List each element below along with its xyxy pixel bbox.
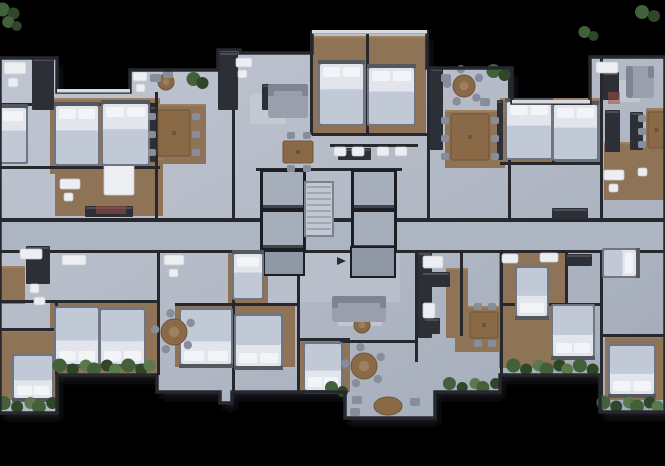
interior-wall bbox=[500, 162, 602, 165]
dining-chair bbox=[441, 153, 449, 160]
balcony-plant bbox=[12, 21, 22, 31]
bed-pillow bbox=[613, 381, 631, 391]
bed-blanket bbox=[604, 250, 623, 276]
round-table-chair bbox=[356, 343, 364, 351]
balcony-plant bbox=[648, 10, 660, 22]
bed-blanket bbox=[101, 310, 144, 341]
core-panel bbox=[352, 248, 394, 276]
parapet-wall bbox=[512, 100, 590, 104]
wood-floor bbox=[0, 266, 25, 304]
bathroom-fixture bbox=[169, 269, 178, 277]
bed-pillow bbox=[323, 67, 340, 77]
bathroom-fixture bbox=[60, 179, 80, 189]
counter-highlight bbox=[498, 101, 502, 103]
balcony-plant bbox=[487, 64, 501, 78]
bed-pillow bbox=[13, 111, 23, 121]
table-centerpiece bbox=[296, 150, 300, 154]
dining-chair bbox=[192, 149, 200, 156]
bathroom-fixture bbox=[352, 147, 364, 156]
balcony-plant bbox=[121, 359, 135, 373]
parapet-wall bbox=[57, 89, 130, 93]
interior-wall bbox=[312, 133, 428, 136]
dining-chair bbox=[192, 131, 200, 138]
balcony-plant bbox=[573, 359, 587, 373]
bed-pillow bbox=[556, 343, 572, 353]
bathroom-fixture bbox=[604, 170, 624, 180]
balcony-plant bbox=[11, 401, 23, 413]
interior-wall bbox=[0, 166, 160, 169]
bathroom-fixture bbox=[8, 78, 18, 87]
bed-headboard bbox=[234, 366, 283, 370]
bed-blanket bbox=[507, 126, 551, 158]
bed-pillow bbox=[59, 109, 76, 119]
round-table-chair bbox=[151, 325, 159, 333]
dining-chair bbox=[148, 149, 156, 156]
bed-pillow bbox=[530, 105, 548, 115]
bed-pillow bbox=[17, 386, 32, 395]
bed-headboard bbox=[0, 104, 28, 108]
bed-pillow bbox=[372, 71, 390, 81]
bed-pillow bbox=[237, 257, 248, 267]
wood-floor-highlight bbox=[646, 108, 665, 110]
core-panel bbox=[265, 252, 303, 274]
bathroom-fixture bbox=[423, 303, 435, 318]
interior-wall bbox=[600, 57, 603, 222]
round-table-chair bbox=[184, 341, 192, 349]
counter-highlight bbox=[151, 107, 155, 109]
bed-headboard bbox=[318, 60, 365, 64]
counter-highlight bbox=[606, 111, 619, 113]
bathroom-fixture bbox=[502, 254, 518, 263]
bed-pillow bbox=[239, 353, 257, 363]
screenshot-root bbox=[0, 0, 665, 466]
elevator-shaft bbox=[354, 172, 394, 208]
balcony-plant bbox=[197, 77, 209, 89]
wood-floor-highlight bbox=[445, 110, 505, 112]
bed-blanket bbox=[610, 346, 654, 374]
elevator-door bbox=[354, 205, 394, 208]
bathroom-fixture bbox=[395, 147, 407, 156]
bed-blanket bbox=[103, 129, 148, 164]
dining-chair bbox=[148, 113, 156, 120]
terrace-chair bbox=[441, 74, 451, 82]
elevator-door bbox=[263, 245, 303, 248]
interior-wall bbox=[340, 340, 418, 343]
bed-pillow bbox=[574, 343, 590, 353]
bathroom-fixture bbox=[377, 147, 389, 156]
round-table-chair bbox=[162, 345, 170, 353]
bathroom-fixture bbox=[334, 147, 346, 156]
sofa-arm bbox=[648, 66, 654, 78]
table-centerpiece bbox=[655, 128, 659, 132]
bathroom-fixture bbox=[609, 184, 618, 192]
kitchen-counter bbox=[605, 110, 620, 152]
round-table-chair bbox=[166, 309, 174, 317]
counter-highlight bbox=[553, 209, 587, 211]
bed-pillow bbox=[78, 109, 95, 119]
bed-pillow bbox=[78, 351, 95, 361]
interior-wall bbox=[500, 252, 503, 375]
tile-accent bbox=[96, 206, 126, 214]
round-table-chair bbox=[186, 319, 194, 327]
table-centerpiece bbox=[172, 131, 176, 135]
round-table-top bbox=[359, 322, 365, 328]
bed-blanket bbox=[553, 306, 593, 335]
round-table-chair bbox=[376, 353, 384, 361]
dining-chair bbox=[491, 117, 499, 124]
dining-chair bbox=[441, 135, 449, 142]
sofa-arm bbox=[268, 84, 274, 96]
terrace-table bbox=[374, 397, 402, 415]
bed-pillow bbox=[633, 381, 651, 391]
terrace-chair bbox=[352, 396, 362, 404]
bed-pillow bbox=[106, 107, 124, 117]
bathroom-fixture bbox=[20, 249, 42, 259]
interior-wall bbox=[0, 300, 160, 303]
terrace-chair bbox=[480, 98, 490, 106]
round-table-top bbox=[169, 327, 179, 337]
wood-floor-highlight bbox=[50, 98, 160, 100]
bed-blanket bbox=[14, 356, 52, 380]
kitchen-counter bbox=[218, 52, 238, 110]
bathroom-fixture bbox=[136, 84, 145, 92]
bed-pillow bbox=[127, 107, 145, 117]
bed-headboard bbox=[551, 356, 595, 360]
sofa-arm bbox=[302, 84, 308, 96]
tile-accent bbox=[608, 92, 620, 104]
interior-wall bbox=[175, 303, 297, 306]
counter-highlight bbox=[631, 113, 642, 115]
bed-pillow bbox=[184, 351, 204, 361]
bed-pillow bbox=[577, 108, 594, 118]
bed-headboard bbox=[367, 64, 416, 68]
bathroom-fixture bbox=[104, 163, 134, 195]
bed-blanket bbox=[305, 344, 341, 371]
bed-pillow bbox=[248, 257, 259, 267]
bathroom-fixture bbox=[62, 255, 86, 265]
interior-wall bbox=[427, 68, 430, 222]
kitchen-counter bbox=[32, 58, 54, 110]
dining-chair bbox=[287, 165, 295, 172]
counter-highlight bbox=[219, 53, 237, 55]
bed-pillow bbox=[104, 351, 121, 361]
bathroom-fixture bbox=[596, 62, 618, 73]
elevator-door bbox=[263, 205, 303, 208]
wood-floor-highlight bbox=[0, 266, 25, 268]
bed-pillow bbox=[393, 71, 411, 81]
sofa-arm bbox=[332, 296, 338, 308]
dining-chair bbox=[474, 340, 482, 347]
bed-blanket bbox=[234, 272, 262, 298]
terrace-chair bbox=[410, 398, 420, 406]
bathroom-fixture bbox=[236, 58, 252, 67]
dining-chair bbox=[488, 303, 496, 310]
staircase bbox=[306, 183, 332, 235]
balcony-plant bbox=[506, 359, 520, 373]
sofa-arm bbox=[380, 296, 386, 308]
kitchen-counter bbox=[497, 100, 503, 160]
elevator-shaft bbox=[263, 172, 303, 208]
bathroom-fixture bbox=[34, 297, 45, 305]
dining-chair bbox=[638, 115, 646, 122]
bathroom-fixture bbox=[4, 62, 26, 74]
dining-chair bbox=[303, 132, 311, 139]
bed-pillow bbox=[308, 377, 322, 387]
bathroom-fixture bbox=[638, 168, 647, 176]
round-table-chair bbox=[472, 93, 480, 101]
dining-chair bbox=[491, 153, 499, 160]
interior-wall bbox=[460, 252, 463, 336]
bed-blanket bbox=[320, 89, 363, 124]
round-table-top bbox=[460, 82, 469, 91]
bathroom-fixture bbox=[164, 255, 184, 265]
bed-blanket bbox=[56, 308, 98, 340]
bathroom-fixture bbox=[133, 72, 147, 81]
table-centerpiece bbox=[468, 135, 472, 139]
dining-chair bbox=[488, 340, 496, 347]
bed-pillow bbox=[34, 386, 49, 395]
dining-chair bbox=[303, 165, 311, 172]
bed-blanket bbox=[236, 316, 281, 345]
balcony-plant bbox=[635, 5, 649, 19]
bed-pillow bbox=[557, 108, 574, 118]
counter-highlight bbox=[425, 319, 439, 321]
table-centerpiece bbox=[482, 323, 486, 327]
dining-chair bbox=[638, 128, 646, 135]
sofa-back bbox=[332, 296, 386, 303]
bathroom-fixture bbox=[423, 256, 443, 268]
bed-pillow bbox=[532, 303, 544, 313]
bed-headboard bbox=[101, 100, 150, 104]
sofa-arm bbox=[626, 66, 632, 78]
round-table-chair bbox=[352, 379, 360, 387]
interior-wall bbox=[330, 144, 418, 147]
bed-pillow bbox=[260, 353, 278, 363]
bed-blanket bbox=[56, 130, 98, 164]
round-table-chair bbox=[341, 359, 349, 367]
bed-headboard bbox=[232, 250, 264, 254]
bed-pillow bbox=[625, 263, 633, 273]
bed-pillow bbox=[510, 105, 528, 115]
balcony-plant bbox=[589, 31, 599, 41]
balcony-plant bbox=[443, 377, 456, 390]
dining-chair bbox=[287, 132, 295, 139]
bathroom-fixture bbox=[238, 70, 247, 78]
bed-pillow bbox=[343, 67, 360, 77]
dining-chair bbox=[441, 117, 449, 124]
bed-headboard bbox=[179, 364, 233, 368]
bed-blanket bbox=[369, 92, 414, 124]
bathroom-fixture bbox=[64, 193, 73, 201]
dining-chair bbox=[148, 131, 156, 138]
counter-highlight bbox=[567, 255, 591, 257]
counter-highlight bbox=[419, 253, 431, 255]
bathroom-fixture bbox=[540, 253, 558, 262]
terrace-chair bbox=[350, 408, 360, 416]
bed-pillow bbox=[208, 351, 228, 361]
bed-headboard bbox=[54, 102, 100, 106]
bed-pillow bbox=[3, 111, 13, 121]
dining-chair bbox=[474, 303, 482, 310]
round-table-chair bbox=[374, 375, 382, 383]
interior-wall bbox=[415, 252, 418, 362]
balcony-plant bbox=[143, 360, 155, 372]
bed-headboard bbox=[515, 316, 549, 320]
bed-blanket bbox=[517, 268, 547, 296]
interior-wall bbox=[600, 334, 665, 337]
floor-plan-svg bbox=[0, 0, 665, 466]
bed-pillow bbox=[625, 253, 633, 263]
interior-wall bbox=[157, 252, 160, 375]
dining-chair bbox=[491, 135, 499, 142]
dining-chair bbox=[638, 141, 646, 148]
balcony-plant bbox=[53, 359, 67, 373]
bathroom-fixture bbox=[30, 284, 39, 293]
wood-floor-highlight bbox=[446, 268, 468, 270]
bed-blanket bbox=[0, 131, 26, 162]
round-table-chair bbox=[475, 74, 483, 82]
balcony-plant bbox=[499, 69, 511, 81]
counter-highlight bbox=[423, 273, 449, 275]
dining-chair bbox=[192, 113, 200, 120]
floor-plan-layers bbox=[0, 3, 665, 426]
interior-wall bbox=[0, 328, 57, 331]
round-table-top bbox=[359, 361, 369, 371]
elevator-shaft bbox=[263, 212, 303, 248]
terrace-chair bbox=[150, 74, 161, 82]
bed-blanket bbox=[554, 128, 597, 159]
round-table-top bbox=[163, 79, 169, 85]
elevator-shaft bbox=[354, 212, 394, 248]
bed-pillow bbox=[520, 303, 532, 313]
round-table-chair bbox=[453, 97, 461, 105]
parapet-wall bbox=[312, 30, 427, 34]
bed-headboard bbox=[636, 248, 640, 278]
